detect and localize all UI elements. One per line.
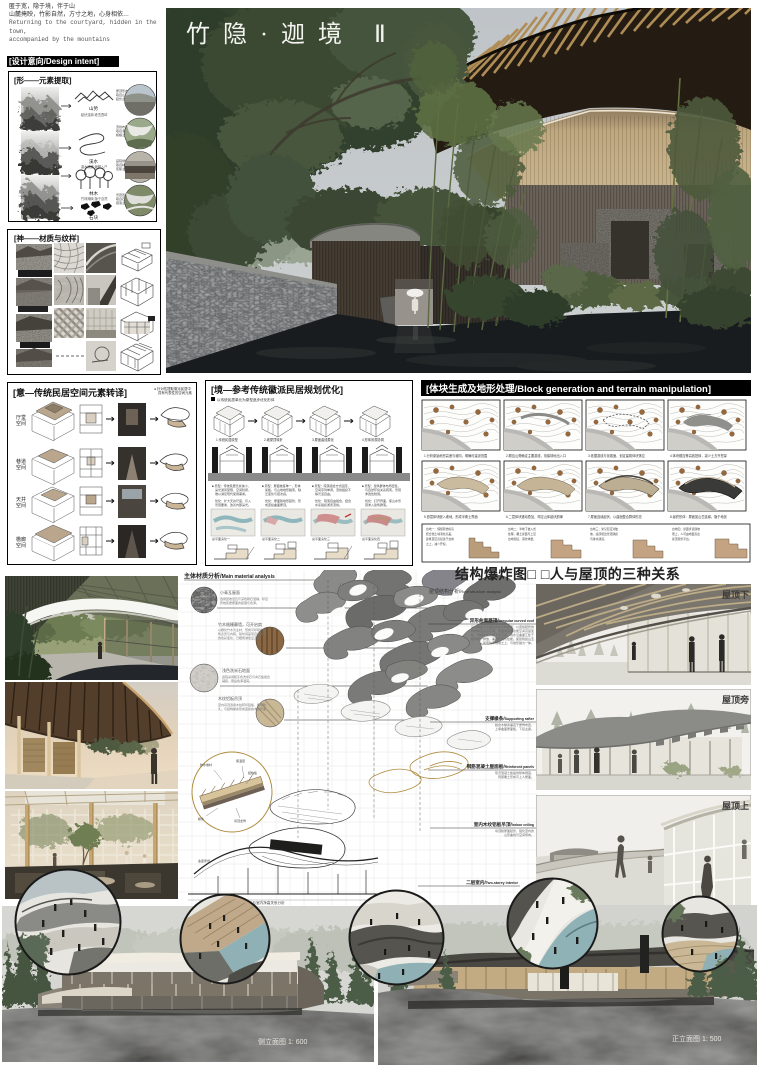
svg-text:台地衔接，弱化体量。: 台地衔接，弱化体量。 — [508, 537, 536, 541]
svg-text:钢筋混凝土屋面板/Reinforced panels: 钢筋混凝土屋面板/Reinforced panels — [467, 763, 535, 770]
svg-text:山形曲线与空间导向。: 山形曲线与空间导向。 — [504, 832, 534, 837]
svg-text:厅堂: 厅堂 — [16, 414, 26, 421]
svg-text:竹木格栅幕墙，可开启扇: 竹木格栅幕墙，可开启扇 — [218, 621, 262, 627]
svg-text:具有代表性的空间元素: 具有代表性的空间元素 — [158, 390, 193, 395]
svg-text:保温层: 保温层 — [236, 758, 245, 763]
svg-text:空间: 空间 — [16, 420, 26, 427]
svg-text:屋顶旁: 屋顶旁 — [722, 694, 749, 705]
svg-text:乏变化与层次感。: 乏变化与层次感。 — [265, 491, 289, 496]
svg-text:[体块生成及地形处理/Block generation an: [体块生成及地形处理/Block generation and terrain … — [426, 383, 711, 395]
svg-text:石块: 石块 — [89, 214, 98, 221]
svg-text:渗透性较弱。: 渗透性较弱。 — [365, 491, 383, 496]
svg-text:4.体块顺应等高线扭转，减少土方开挖量: 4.体块顺应等高线扭转，减少土方开挖量 — [670, 453, 728, 458]
svg-text:传统民居屋面的肌理与色泽。: 传统民居屋面的肌理与色泽。 — [220, 600, 259, 605]
svg-text:久，与结构椽条形成连续的木色界面: 久，与结构椽条形成连续的木色界面 — [218, 706, 266, 711]
svg-text:屋顶上: 屋顶上 — [722, 800, 749, 811]
svg-text:台地一：保留原始标高: 台地一：保留原始标高 — [426, 527, 454, 531]
svg-text:总平面演化三: 总平面演化三 — [312, 536, 330, 541]
svg-text:台地二：半地下嵌入式: 台地二：半地下嵌入式 — [508, 527, 536, 531]
svg-text:够灵活自由。: 够灵活自由。 — [315, 491, 333, 496]
svg-text:巷道: 巷道 — [16, 458, 26, 465]
svg-text:室内木纹铝板吊顶/Indoor ceiling: 室内木纹铝板吊顶/Indoor ceiling — [474, 821, 534, 828]
svg-text:支撑椽条/Supporting rafter: 支撑椽条/Supporting rafter — [485, 715, 535, 722]
svg-text:1.分析原始地形高差与坡向，明确可建设范围: 1.分析原始地形高差与坡向，明确可建设范围 — [424, 453, 487, 458]
svg-text:建筑首层直接落于台地: 建筑首层直接落于台地 — [426, 537, 454, 541]
svg-text:木纹铝板吊顶: 木纹铝板吊顶 — [218, 695, 242, 701]
svg-text:屋顶下: 屋顶下 — [722, 590, 749, 600]
svg-text:空间: 空间 — [16, 502, 26, 509]
svg-text:7.屋面连续起伏，以曲面整合群体形态: 7.屋面连续起伏，以曲面整合群体形态 — [588, 514, 642, 519]
svg-text:上承曲面屋面板，下接主梁。: 上承曲面屋面板，下接主梁。 — [495, 726, 534, 731]
svg-text:1.传统民居原型: 1.传统民居原型 — [216, 437, 239, 442]
svg-text:总平面演化二: 总平面演化二 — [262, 536, 280, 541]
svg-text:3.依据游线与景观面，划定建筑体块落位: 3.依据游线与景观面，划定建筑体块落位 — [588, 453, 646, 458]
svg-text:屋顶结构分析/Roof structure analysis: 屋顶结构分析/Roof structure analysis — [429, 588, 501, 595]
svg-text:以传统民居单元为原型逐步优化形体: 以传统民居单元为原型逐步优化形体 — [217, 397, 275, 402]
svg-text:结构板: 结构板 — [248, 770, 257, 775]
svg-text:溪水: 溪水 — [89, 158, 98, 165]
svg-text:总平面演化四: 总平面演化四 — [362, 536, 380, 541]
svg-text:天井: 天井 — [16, 496, 26, 503]
svg-text:山势: 山势 — [89, 105, 98, 112]
svg-text:空间: 空间 — [16, 464, 26, 471]
svg-text:般匍匐于场地之上，与地形融为一体。: 般匍匐于场地之上，与地形融为一体。 — [483, 640, 534, 645]
svg-text:坡，底部留出景观通廊: 坡，底部留出景观通廊 — [590, 532, 618, 536]
svg-text:难以满足现代使用需求。: 难以满足现代使用需求。 — [215, 491, 248, 496]
svg-text:4.形体景观协调: 4.形体景观协调 — [362, 437, 384, 442]
svg-text:[形——元素提取]: [形——元素提取] — [14, 75, 72, 85]
svg-text:防水卷材: 防水卷材 — [200, 762, 212, 767]
svg-text:屋顶观景平台。: 屋顶观景平台。 — [672, 537, 692, 541]
svg-text:檐廊: 檐廊 — [16, 536, 26, 543]
svg-text:2.顺应山势确定主要游线，衔接场地出入口: 2.顺应山势确定主要游线，衔接场地出入口 — [506, 453, 566, 458]
svg-text:处理，覆土屋面与上层: 处理，覆土屋面与上层 — [508, 532, 536, 536]
svg-text:总平面演化一: 总平面演化一 — [212, 536, 230, 541]
svg-text:小青瓦屋面: 小青瓦屋面 — [220, 589, 240, 595]
svg-text:3.屋面曲线柔化: 3.屋面曲线柔化 — [312, 437, 335, 442]
svg-text:起伏连绵 峰峦叠嶂: 起伏连绵 峰峦叠嶂 — [81, 112, 108, 117]
svg-text:与排水通道。: 与排水通道。 — [590, 537, 607, 541]
svg-text:异形曲面屋顶/Irregular curved roof: 异形曲面屋顶/Irregular curved roof — [470, 617, 535, 624]
svg-text:之上，减少开挖。: 之上，减少开挖。 — [426, 542, 448, 546]
svg-text:主体材质分析/Main material analysis: 主体材质分析/Main material analysis — [184, 572, 275, 580]
svg-text:吊顶龙骨: 吊顶龙骨 — [234, 818, 246, 823]
svg-text:局部覆土形成可上人屋面。: 局部覆土形成可上人屋面。 — [498, 774, 534, 779]
svg-text:5.首层体块嵌入坡地，形成半覆土界面: 5.首层体块嵌入坡地，形成半覆土界面 — [424, 514, 478, 519]
svg-text:成连续曲面屋顶。: 成连续曲面屋顶。 — [265, 502, 289, 507]
svg-text:台地四：屋面步道随坡: 台地四：屋面步道随坡 — [672, 527, 700, 531]
svg-text:观渗入建筑群落。: 观渗入建筑群落。 — [365, 502, 389, 507]
svg-text:水系组织游览流线。: 水系组织游览流线。 — [315, 502, 342, 507]
svg-text:竹隐·迦境 Ⅱ: 竹隐·迦境 Ⅱ — [186, 21, 399, 48]
svg-text:椽条: 椽条 — [198, 816, 204, 821]
svg-text:8.最终形体：屋面如山峦连绵，隐于地景: 8.最终形体：屋面如山峦连绵，隐于地景 — [670, 514, 727, 519]
svg-text:浅色洗米石地面: 浅色洗米石地面 — [222, 667, 250, 673]
svg-text:6.二层体块错动叠加，呼应山体起伏韵律: 6.二层体块错动叠加，呼应山体起伏韵律 — [506, 514, 564, 519]
svg-text:[意—传统民居空间元素转译]: [意—传统民居空间元素转译] — [13, 387, 127, 398]
svg-text:[神——材质与纹样]: [神——材质与纹样] — [14, 233, 79, 243]
svg-text:铺装，雨后色泽温润。: 铺装，雨后色泽温润。 — [222, 678, 252, 683]
svg-text:结合挡土墙消化高差，: 结合挡土墙消化高差， — [426, 532, 454, 536]
svg-text:景观要素，改善内部采光。: 景观要素，改善内部采光。 — [215, 502, 251, 507]
svg-text:而上，人可由地面直达: 而上，人可由地面直达 — [672, 532, 700, 536]
svg-text:的色彩变化，日晒雨淋愈显温润。: 的色彩变化，日晒雨淋愈显温润。 — [218, 635, 263, 640]
svg-text:2.坡屋顶转折: 2.坡屋顶转折 — [264, 437, 283, 442]
svg-text:正立面图 1: 500: 正立面图 1: 500 — [672, 1034, 722, 1043]
svg-text:竹林掩映 隐于自然: 竹林掩映 隐于自然 — [81, 196, 108, 201]
svg-text:台地三：架空层应对陡: 台地三：架空层应对陡 — [590, 527, 618, 531]
svg-text:空间: 空间 — [16, 542, 26, 549]
svg-text:[境—参考传统徽派民居规划优化]: [境—参考传统徽派民居规划优化] — [211, 384, 343, 395]
svg-text:曲面屋脊: 曲面屋脊 — [198, 858, 210, 863]
svg-text:林木: 林木 — [89, 190, 98, 197]
svg-text:侧立面图 1: 600: 侧立面图 1: 600 — [258, 1037, 308, 1046]
